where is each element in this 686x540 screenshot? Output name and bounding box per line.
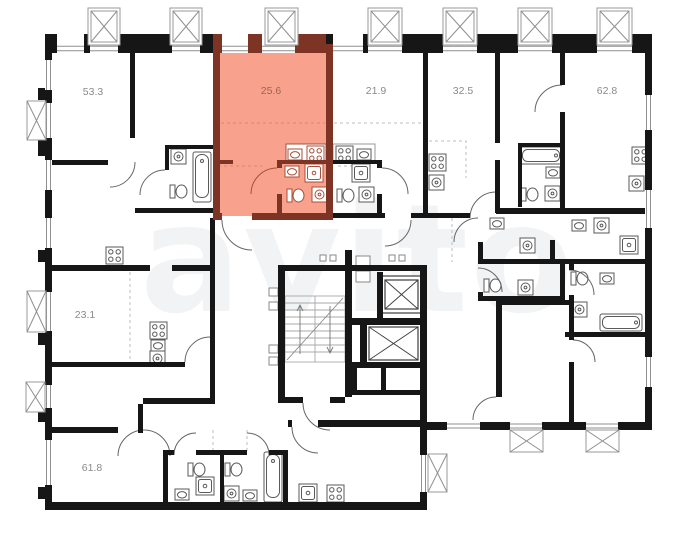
shower-icon [299,484,317,502]
sink-icon [151,340,165,351]
window-icon [45,60,52,90]
balcony-icon [26,382,45,412]
sink-icon [243,490,257,501]
washing-machine-icon [594,218,609,233]
area-label-21-9: 21.9 [366,85,387,97]
sink-icon [288,149,302,160]
toilet-icon [484,279,501,292]
bathtub-icon [193,152,211,202]
balcony-icon [586,430,619,452]
toilet-icon [287,189,304,202]
bathtub-icon [264,452,282,502]
shower-icon [352,164,370,182]
area-label-62-8: 62.8 [597,85,618,97]
washing-machine-icon [312,187,327,202]
area-label-53-3: 53.3 [83,86,104,98]
stove-icon [106,247,123,264]
balcony-icon [443,8,477,45]
balcony-icon [88,8,120,45]
window-icon [645,95,652,130]
elevator-icon [381,276,422,313]
washing-machine-icon [359,187,374,202]
window-icon [447,422,480,430]
area-label-61-8: 61.8 [82,462,103,474]
washing-machine-icon [520,238,535,253]
window-icon [420,455,427,492]
sink-icon [572,220,586,231]
sink-icon [357,149,371,160]
washing-machine-icon [545,186,560,201]
stove-icon [429,154,446,171]
window-icon [45,218,52,248]
balcony-icon [265,8,298,45]
balcony-icon [518,8,552,45]
sink-icon [285,166,299,177]
window-icon [45,160,52,190]
stove-icon [327,485,344,502]
balcony-icon [368,8,402,45]
toilet-icon [571,272,588,285]
window-icon [645,357,652,387]
sink-icon [490,218,504,229]
washing-machine-icon [629,176,644,191]
window-icon [45,385,52,408]
window-icon [222,44,248,53]
window-icon [510,422,542,430]
staircase-icon [285,296,345,362]
washing-machine-icon [171,149,186,164]
balcony-icon [27,291,46,332]
bathtub-icon [600,314,642,331]
window-icon [333,44,363,53]
sink-icon [175,489,189,500]
toilet-icon [170,185,187,198]
toilet-icon [188,463,205,476]
washing-machine-icon [572,302,587,317]
area-label-25-6[interactable]: 25.6 [261,85,282,97]
elevator-icon [365,323,422,364]
balcony-icon [27,101,46,140]
window-icon [586,422,618,430]
washing-machine-icon [224,486,239,501]
bathtub-icon [520,147,562,164]
floor-plan-viewer: avito [0,0,686,540]
balcony-icon [510,430,543,452]
toilet-icon [225,463,242,476]
shower-icon [305,164,323,182]
shower-icon [620,236,638,254]
balcony-icon [428,454,447,492]
window-icon [57,44,84,53]
window-icon [645,190,652,228]
toilet-icon [521,188,538,201]
sink-icon [600,273,614,284]
washing-machine-icon [429,175,444,190]
washing-machine-icon [518,280,533,295]
area-label-23-1: 23.1 [75,309,96,321]
balcony-icon [597,8,632,45]
stove-icon [150,322,167,339]
floor-plan: 53.3 25.6 21.9 32.5 62.8 23.1 61.8 [0,0,686,540]
shower-icon [196,477,214,495]
balcony-icon [170,8,202,45]
sink-icon [546,167,560,178]
area-label-32-5: 32.5 [453,85,474,97]
toilet-icon [337,189,354,202]
window-icon [45,440,52,485]
